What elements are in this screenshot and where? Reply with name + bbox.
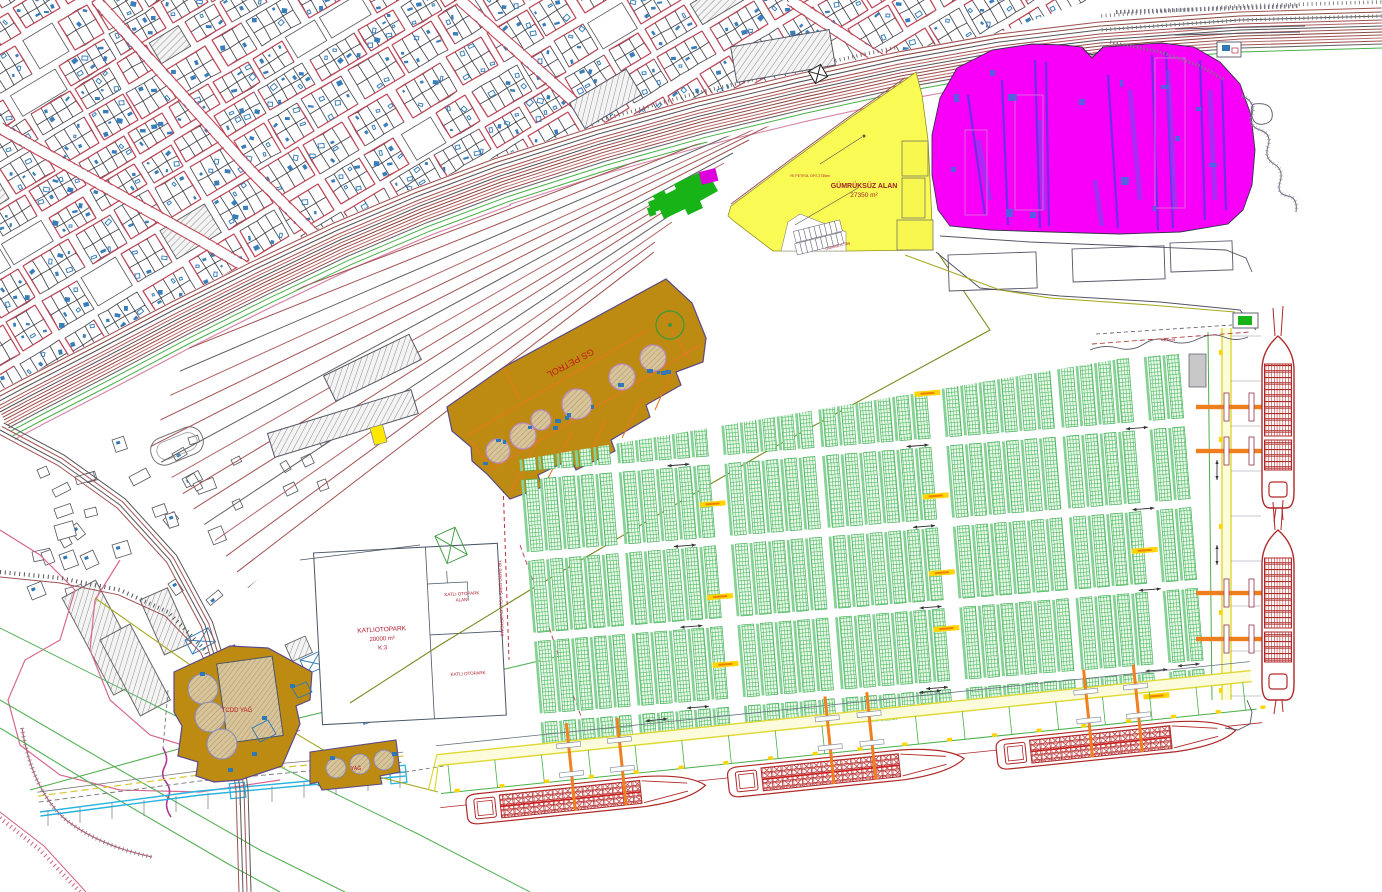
svg-text:27350 m²: 27350 m² (850, 192, 878, 199)
svg-text:GÜMRÜKSÜZ ALAN: GÜMRÜKSÜZ ALAN (831, 181, 898, 190)
svg-text:YE PETROL OFS 2735m²: YE PETROL OFS 2735m² (790, 174, 831, 178)
svg-text:ALANI: ALANI (456, 597, 469, 603)
svg-text:TCDD YAĞ: TCDD YAĞ (222, 707, 253, 714)
svg-text:kiyi seridi: kiyi seridi (1161, 338, 1176, 342)
svg-text:K:3: K:3 (378, 645, 388, 651)
svg-text:YAĞ: YAĞ (351, 765, 361, 772)
